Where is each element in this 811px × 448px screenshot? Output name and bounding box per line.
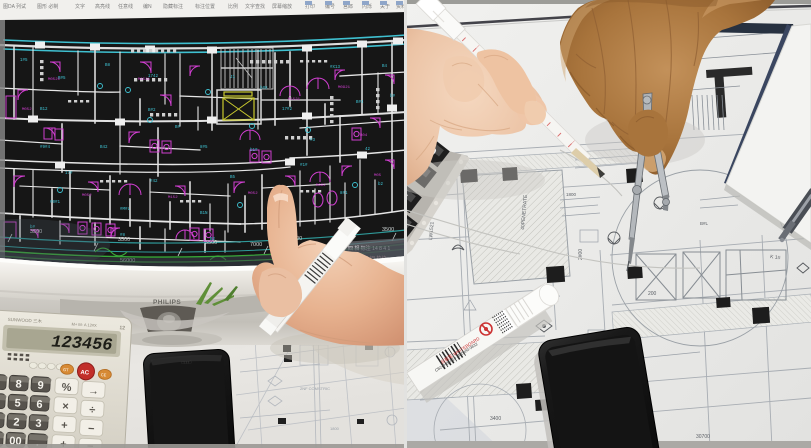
svg-text:1800: 1800 — [330, 426, 340, 431]
svg-text:M05: M05 — [374, 174, 382, 178]
svg-text:3400: 3400 — [490, 416, 501, 422]
svg-text:#M#L: #M#L — [120, 208, 131, 212]
svg-text:M0521: M0521 — [48, 78, 61, 82]
svg-text:M1521: M1521 — [288, 98, 301, 102]
svg-text:#9#4: #9#4 — [40, 146, 51, 150]
svg-text:B#4: B#4 — [356, 101, 364, 105]
svg-text:8#1: 8#1 — [340, 192, 348, 196]
svg-text:2: 2 — [13, 416, 20, 428]
svg-text:b1#: b1# — [250, 148, 258, 153]
svg-text:B04: B04 — [360, 134, 368, 138]
svg-text:比例: 比例 — [228, 3, 238, 10]
svg-text:#0#1: #0#1 — [50, 201, 61, 205]
svg-text:9: 9 — [37, 380, 44, 392]
svg-text:PHILIPS: PHILIPS — [153, 299, 181, 306]
svg-text:文字查找: 文字查找 — [245, 3, 265, 10]
svg-text:M052: M052 — [22, 108, 32, 112]
svg-text:图形 必制: 图形 必制 — [37, 3, 58, 10]
svg-text:#3: #3 — [310, 139, 316, 143]
svg-text:B#L: B#L — [700, 221, 709, 226]
svg-text:#42: #42 — [150, 180, 158, 184]
svg-text:8#5: 8#5 — [200, 146, 208, 150]
svg-text:3: 3 — [35, 418, 42, 430]
svg-text:B#: B# — [175, 126, 181, 130]
svg-text:→: → — [88, 385, 100, 398]
svg-text:屏幕缩放: 屏幕缩放 — [272, 3, 292, 10]
svg-text:编N: 编N — [143, 3, 152, 10]
svg-text:#1#: #1# — [300, 164, 308, 168]
svg-text:3500: 3500 — [118, 237, 130, 243]
svg-text:b2: b2 — [378, 182, 384, 187]
svg-text:M052: M052 — [82, 194, 92, 198]
svg-text:B4: B4 — [382, 65, 388, 69]
svg-text:1800: 1800 — [566, 192, 577, 197]
svg-text:3500: 3500 — [205, 240, 217, 246]
svg-text:B8: B8 — [105, 64, 111, 68]
svg-text:÷: ÷ — [89, 404, 96, 416]
svg-text:−: − — [88, 423, 95, 435]
svg-text:□□□□: □□□□ — [181, 359, 192, 365]
svg-text:b#: b# — [390, 94, 396, 99]
svg-text:2NF COMSTRIC: 2NF COMSTRIC — [300, 386, 330, 391]
svg-text:B5: B5 — [230, 176, 236, 180]
svg-text:%: % — [61, 382, 72, 395]
svg-text:#X13: #X13 — [330, 66, 341, 70]
svg-text:B1N: B1N — [200, 212, 208, 216]
svg-text:任意线: 任意线 — [118, 3, 133, 10]
svg-text:5: 5 — [14, 397, 21, 409]
svg-text:1#5: 1#5 — [20, 59, 28, 63]
svg-text:200: 200 — [648, 291, 657, 297]
svg-text:B12: B12 — [40, 108, 48, 112]
svg-text:M1521: M1521 — [138, 78, 151, 82]
svg-text:B#2: B#2 — [148, 109, 156, 113]
svg-text:42: 42 — [365, 148, 371, 152]
svg-text:M092: M092 — [316, 184, 326, 188]
svg-text:17#: 17# — [65, 172, 73, 176]
svg-text:17#2: 17#2 — [282, 108, 293, 112]
svg-text:M152: M152 — [168, 196, 178, 200]
svg-text:B42: B42 — [100, 146, 108, 150]
svg-text:b#8: b#8 — [260, 86, 268, 91]
svg-text:+: + — [61, 420, 68, 432]
svg-text:8: 8 — [15, 378, 22, 390]
svg-text:J1: J1 — [230, 76, 236, 80]
svg-text:123456: 123456 — [51, 333, 113, 355]
svg-text:30700: 30700 — [696, 434, 710, 440]
svg-text:M052: M052 — [248, 192, 258, 196]
svg-text:6: 6 — [36, 399, 43, 411]
svg-text:×: × — [62, 401, 69, 413]
svg-text:3500: 3500 — [382, 227, 394, 233]
svg-text:高亮线: 高亮线 — [95, 3, 110, 10]
svg-text:M0921: M0921 — [338, 86, 351, 90]
svg-text:AC: AC — [80, 370, 90, 377]
svg-text:CE: CE — [101, 372, 107, 377]
svg-text:12: 12 — [119, 325, 125, 331]
svg-text:GT: GT — [63, 367, 69, 372]
svg-text:7000: 7000 — [250, 242, 262, 248]
svg-text:隐藏标注: 隐藏标注 — [163, 3, 183, 10]
svg-text:文字: 文字 — [75, 3, 85, 10]
svg-text:图DA 列试: 图DA 列试 — [3, 3, 26, 10]
svg-text:标注位置: 标注位置 — [195, 3, 215, 10]
